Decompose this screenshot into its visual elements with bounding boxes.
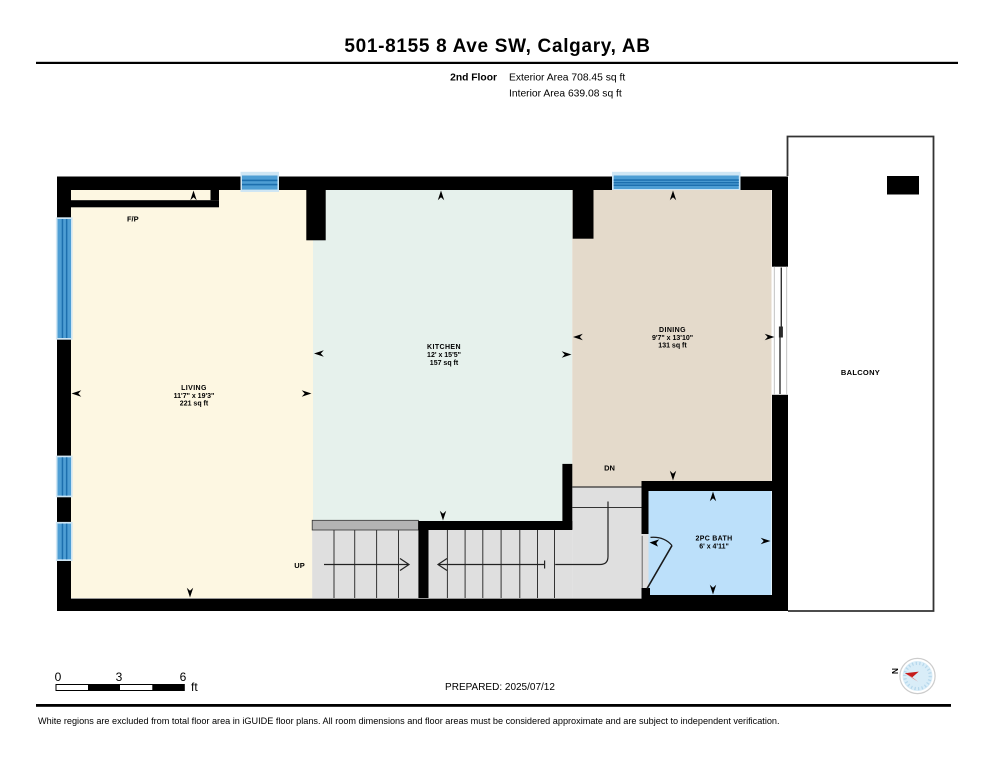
svg-text:221 sq ft: 221 sq ft <box>180 401 209 408</box>
svg-text:2PC BATH: 2PC BATH <box>696 536 733 543</box>
svg-text:131 sq ft: 131 sq ft <box>658 343 687 350</box>
svg-text:6' x 4'11": 6' x 4'11" <box>699 543 729 550</box>
svg-text:Exterior Area 708.45 sq ft: Exterior Area 708.45 sq ft <box>509 73 625 84</box>
svg-text:2nd Floor: 2nd Floor <box>450 73 497 84</box>
svg-text:N: N <box>890 668 900 674</box>
svg-text:Interior Area 639.08 sq ft: Interior Area 639.08 sq ft <box>509 89 622 100</box>
svg-text:KITCHEN: KITCHEN <box>427 344 461 351</box>
svg-text:9'7" x 13'10": 9'7" x 13'10" <box>652 335 693 342</box>
svg-text:UP: UP <box>294 561 304 570</box>
svg-text:157 sq ft: 157 sq ft <box>430 360 459 367</box>
svg-text:3: 3 <box>116 670 123 684</box>
svg-text:LIVING: LIVING <box>181 385 207 392</box>
svg-text:0: 0 <box>55 670 62 684</box>
svg-text:F/P: F/P <box>127 215 139 224</box>
svg-text:6: 6 <box>180 670 187 684</box>
svg-text:DINING: DINING <box>659 327 686 334</box>
svg-text:501-8155 8 Ave SW, Calgary, AB: 501-8155 8 Ave SW, Calgary, AB <box>344 36 650 57</box>
svg-text:DN: DN <box>604 464 615 473</box>
svg-text:White regions are excluded fro: White regions are excluded from total fl… <box>38 716 780 726</box>
svg-text:11'7" x 19'3": 11'7" x 19'3" <box>174 393 215 400</box>
svg-text:ft: ft <box>191 680 198 694</box>
svg-text:12' x 15'5": 12' x 15'5" <box>427 352 461 359</box>
svg-text:BALCONY: BALCONY <box>841 368 880 377</box>
svg-text:PREPARED: 2025/07/12: PREPARED: 2025/07/12 <box>445 682 555 693</box>
